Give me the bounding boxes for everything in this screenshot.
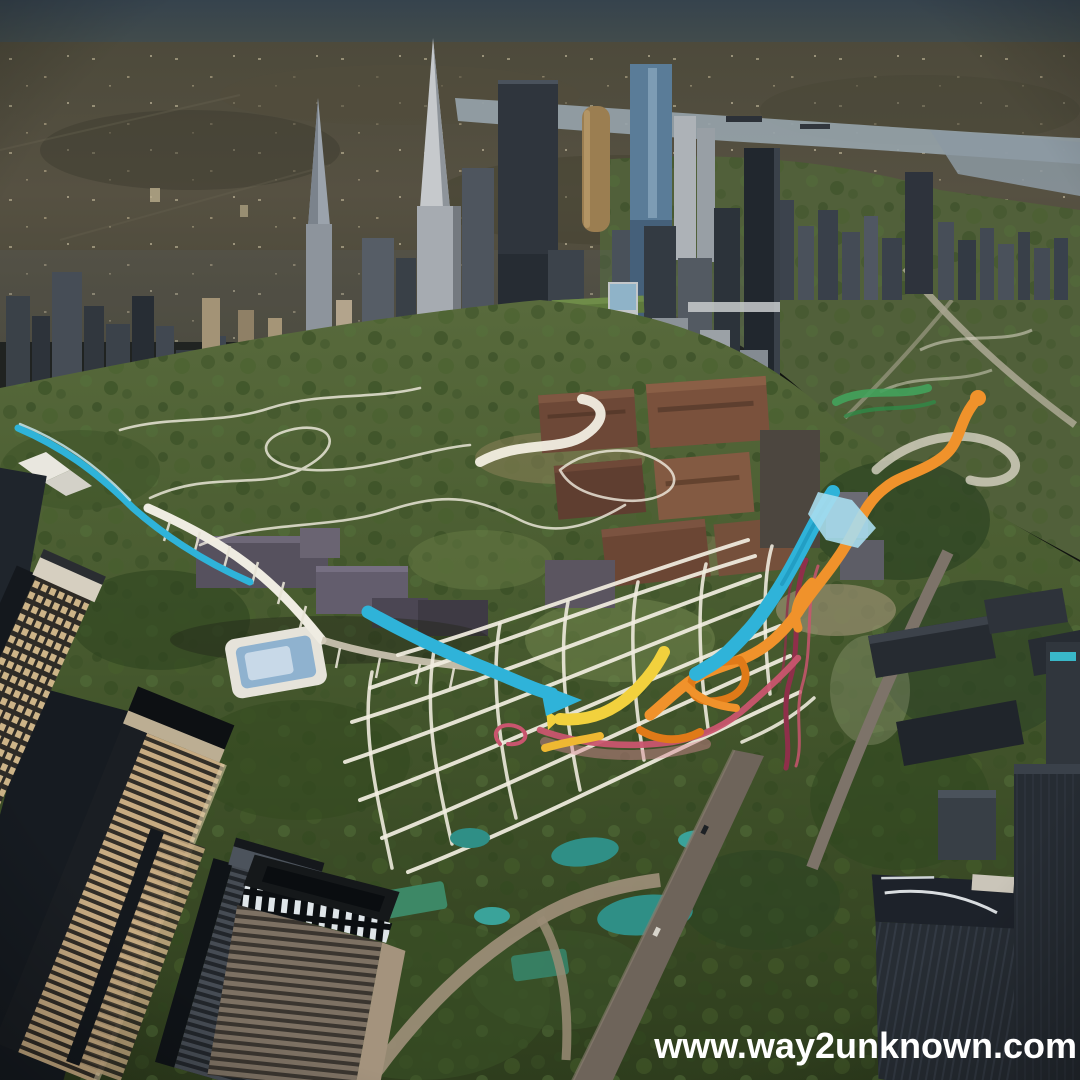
- scene-canvas: www.way2unknown.com: [0, 0, 1080, 1080]
- aerial-cityscape-image: www.way2unknown.com: [0, 0, 1080, 1080]
- watermark-text: www.way2unknown.com: [653, 1025, 1077, 1066]
- vignette: [0, 0, 1080, 1080]
